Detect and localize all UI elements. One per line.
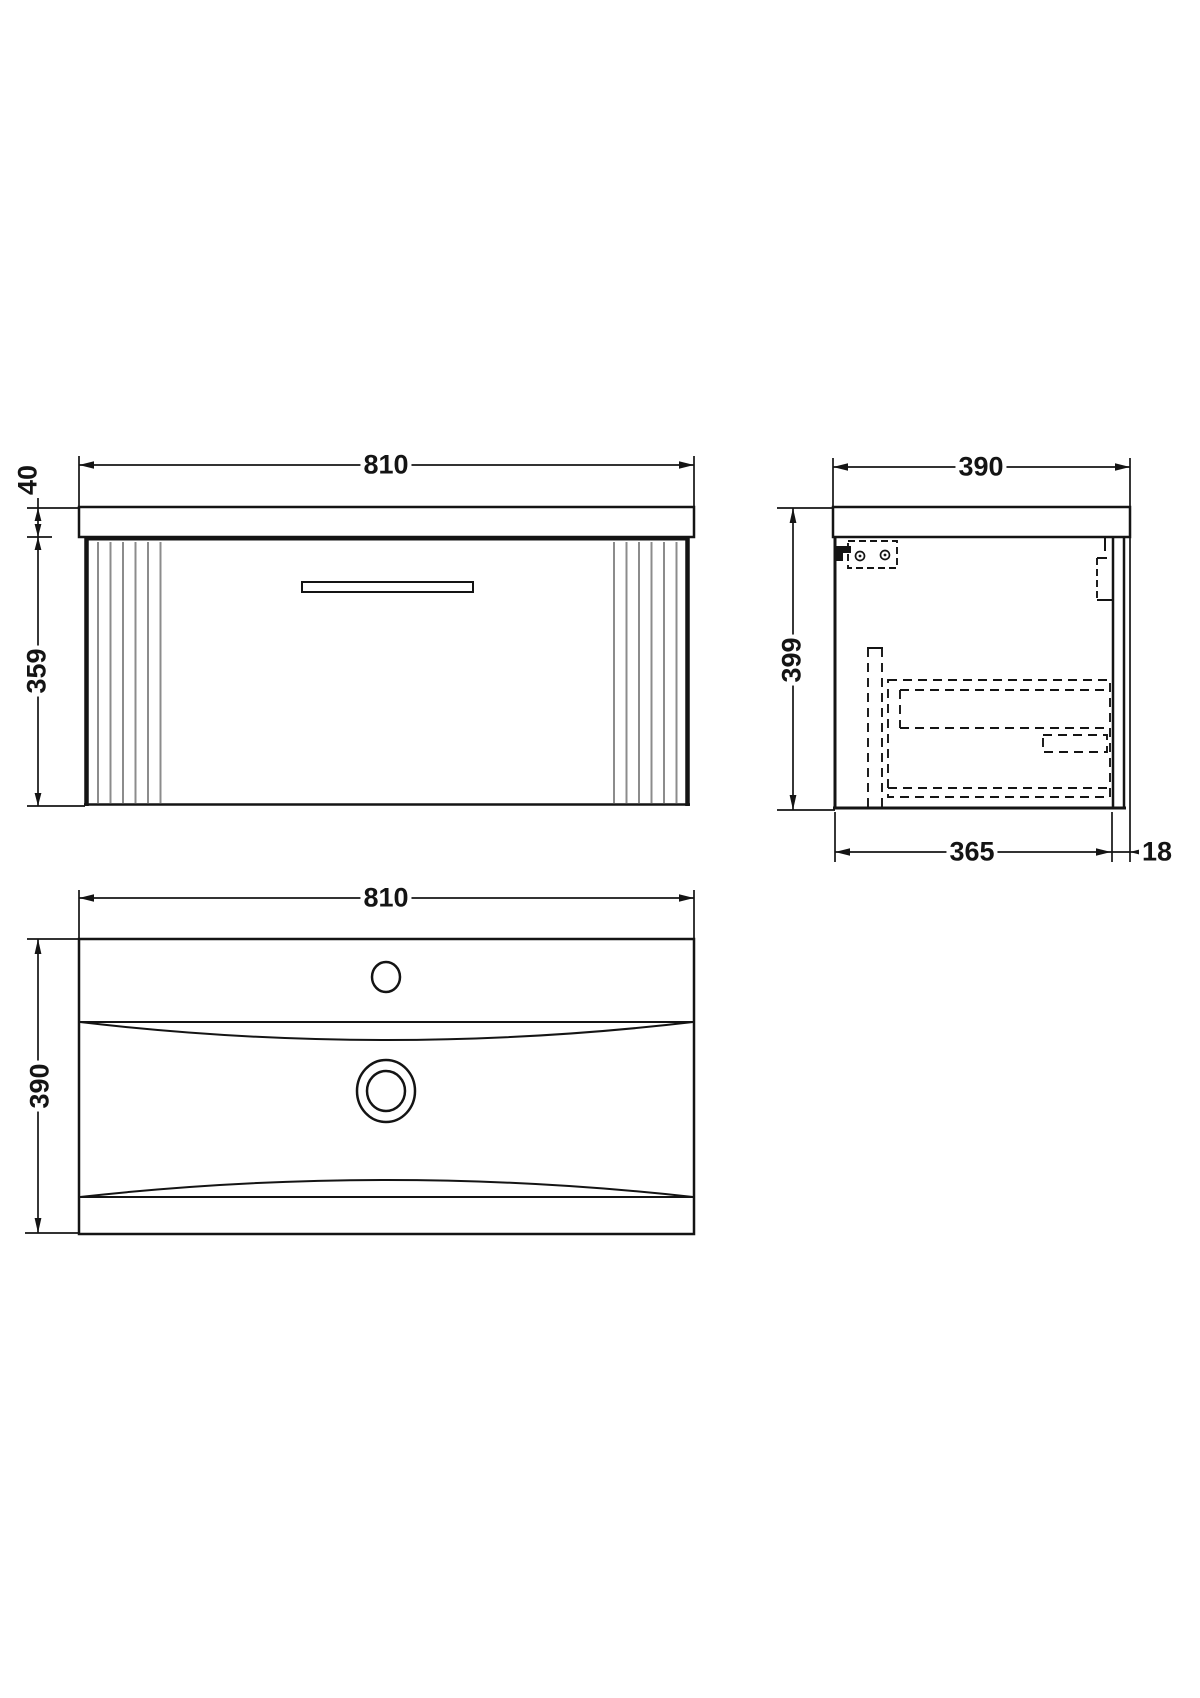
hanging-rail-right (1097, 538, 1113, 600)
arrowhead (790, 508, 797, 523)
plan-depth-dim-label: 390 (27, 1060, 54, 1111)
technical-drawing-canvas: 810 40 359 390 399 365 18 810 390 (0, 0, 1200, 1698)
basin-outline (79, 939, 694, 1234)
arrowhead (35, 524, 42, 537)
wall-bracket-screws (856, 551, 890, 561)
screw-center (859, 555, 862, 558)
side-height-dim-label: 399 (779, 634, 806, 685)
drawing-linework (0, 0, 1200, 1698)
front-worktop-outline (79, 507, 694, 537)
front-worktop-thickness-dim-label: 40 (15, 462, 42, 498)
side-worktop-outline (833, 507, 1130, 537)
arrowhead (833, 463, 848, 470)
front-elevation-view (27, 456, 694, 806)
side-back-gap-dim-label: 18 (1139, 839, 1175, 866)
arrowhead (35, 939, 42, 954)
arrowhead (35, 793, 42, 806)
hidden-vertical-panel (867, 648, 883, 807)
arrowhead (35, 537, 42, 550)
drawer-handle (302, 582, 473, 592)
arrowhead (679, 461, 694, 468)
arrowhead (1096, 848, 1111, 855)
screw-center (884, 554, 887, 557)
drawer-hidden-outline (888, 680, 1110, 797)
basin-plan-view (25, 890, 694, 1234)
arrowhead (1115, 463, 1130, 470)
fluted-panel-left (98, 542, 161, 803)
fluted-panel-right (614, 542, 677, 803)
arrowhead (35, 508, 42, 521)
drawer-box-outline (888, 680, 1110, 797)
arrowhead (790, 795, 797, 810)
arrowhead (79, 461, 94, 468)
arrowhead (679, 894, 694, 901)
front-width-dim-label: 810 (360, 452, 411, 479)
arrowhead (835, 848, 850, 855)
side-section-view (777, 458, 1144, 862)
front-cabinet-height-dim-label: 359 (24, 645, 51, 696)
arrowhead (35, 1218, 42, 1233)
side-cabinet-depth-dim-label: 365 (946, 839, 997, 866)
plan-width-dim-label: 810 (360, 885, 411, 912)
side-depth-dim-label: 390 (955, 454, 1006, 481)
drawer-runner (1043, 735, 1107, 752)
arrowhead (79, 894, 94, 901)
